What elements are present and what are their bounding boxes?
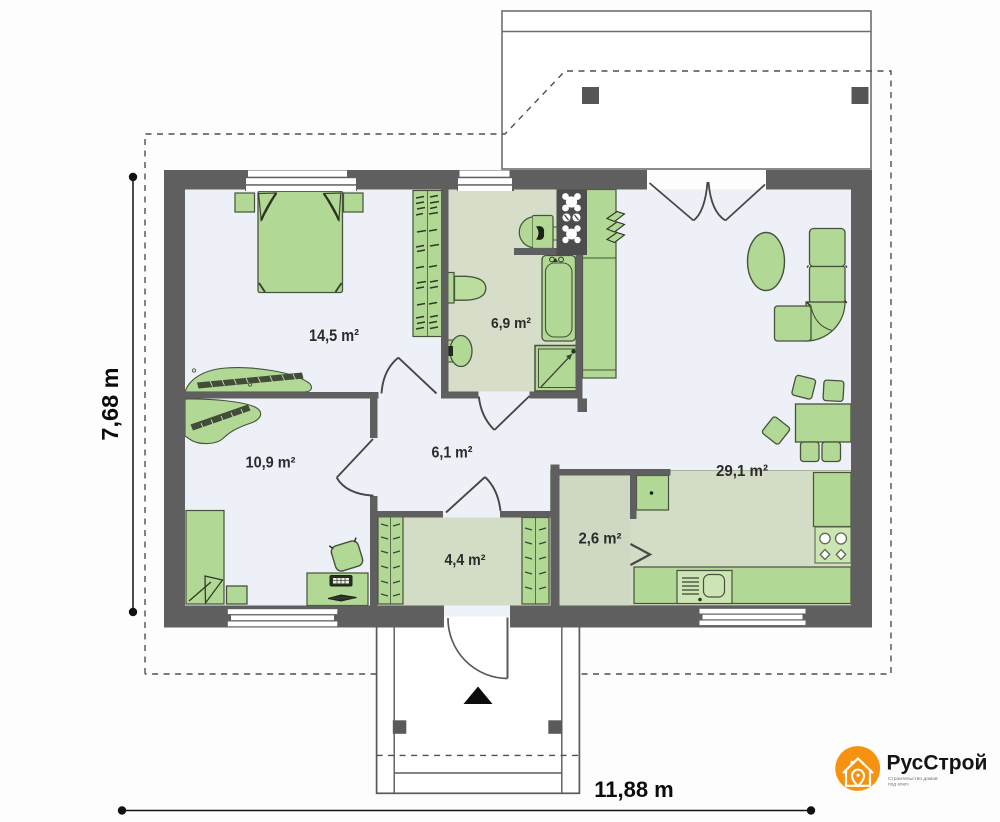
svg-text:РусСтрой: РусСтрой bbox=[887, 752, 988, 775]
svg-text:под ключ: под ключ bbox=[888, 783, 909, 788]
svg-text:Строительство домов: Строительство домов bbox=[888, 776, 938, 782]
svg-text:10,9 m²: 10,9 m² bbox=[246, 455, 296, 472]
svg-text:2,6 m²: 2,6 m² bbox=[579, 531, 622, 548]
svg-text:14,5 m²: 14,5 m² bbox=[309, 327, 359, 345]
svg-text:6,1 m²: 6,1 m² bbox=[432, 445, 473, 462]
svg-text:11,88 m: 11,88 m bbox=[594, 777, 674, 802]
svg-text:29,1 m²: 29,1 m² bbox=[716, 463, 768, 480]
svg-text:4,4 m²: 4,4 m² bbox=[445, 552, 486, 569]
svg-text:7,68 m: 7,68 m bbox=[97, 367, 123, 440]
svg-text:6,9 m²: 6,9 m² bbox=[491, 315, 531, 332]
